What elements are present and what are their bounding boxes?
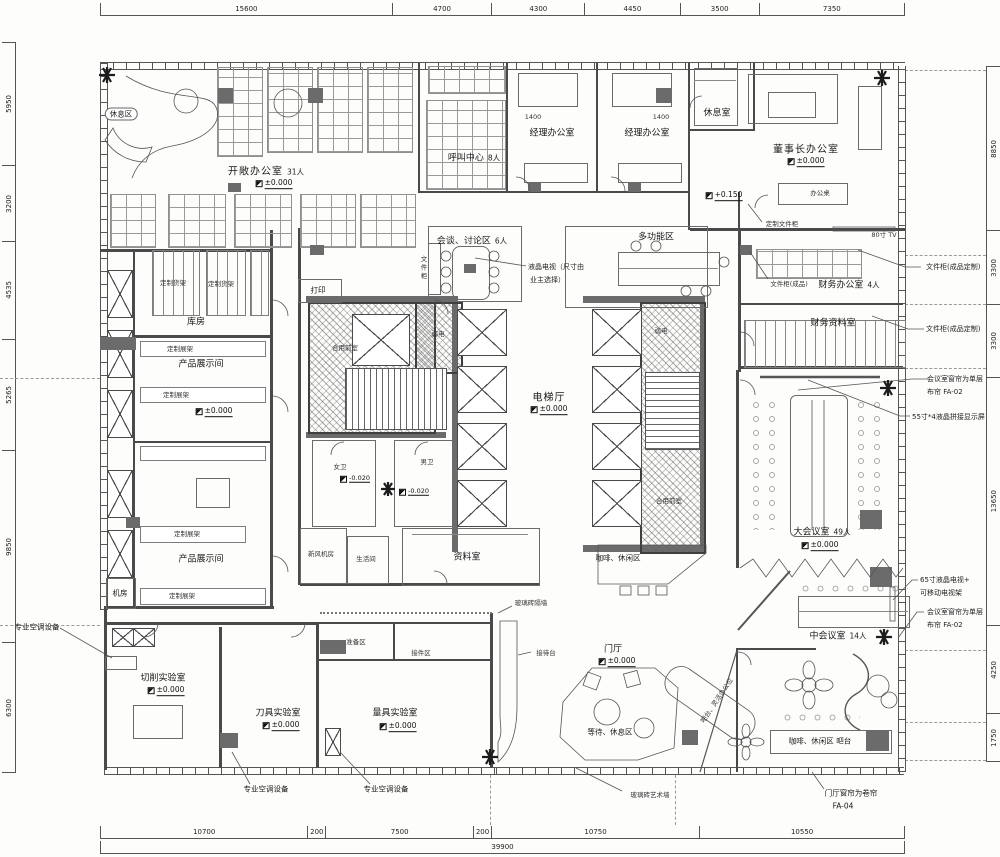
column xyxy=(126,517,140,528)
label-office-desk: 办公桌 xyxy=(810,187,830,197)
room-label-call-center: 呼叫中心8人 xyxy=(448,151,500,164)
elevator-icon xyxy=(592,366,642,413)
elevation-mark: ±0.000 xyxy=(788,157,825,167)
glass-brick-wall xyxy=(320,612,492,614)
chair-bank xyxy=(748,398,782,530)
elevator-icon xyxy=(457,480,507,527)
elevation-marker-icon xyxy=(531,407,538,414)
table-divider xyxy=(618,268,718,269)
display-rack xyxy=(140,341,266,357)
sofa xyxy=(524,163,588,183)
dim-right-4: 13650 xyxy=(990,490,998,512)
room-label-women-wc: 女卫 xyxy=(334,461,347,471)
elevation-mark: +0.150 xyxy=(706,191,743,201)
elevation-marker-icon xyxy=(196,409,203,416)
elevation-marker-icon xyxy=(399,489,406,496)
tv-icon xyxy=(464,264,476,273)
grid-line xyxy=(905,304,986,305)
label-tv-80: 80寸 TV xyxy=(871,229,896,239)
display-rack xyxy=(140,387,266,403)
room-label-finance-archive: 财务资料室 xyxy=(810,316,855,329)
dim-row-total: 39900 xyxy=(100,841,905,854)
elevator-icon xyxy=(457,366,507,413)
room-label-manager-1: 经理办公室 xyxy=(529,126,574,139)
desk-cluster xyxy=(756,249,862,279)
annotation-glass-partition: 玻璃砖隔墙 xyxy=(515,597,548,607)
label-custom-rack-1: 定制展架 xyxy=(167,343,193,353)
wall xyxy=(318,659,492,661)
dim-bottom-total: 39900 xyxy=(491,843,513,853)
elevation-mark: -0.020 xyxy=(340,475,370,483)
label-custom-shelf-2: 定制货架 xyxy=(208,278,234,288)
dim-top-2: 4700 xyxy=(433,5,451,15)
ac-unit-icon xyxy=(325,728,341,756)
dim-right-2: 3300 xyxy=(990,259,998,277)
desk-cluster xyxy=(426,100,506,190)
ac-equipment xyxy=(220,733,238,748)
elevation-marker-icon xyxy=(340,476,347,483)
dim-right-5: 4250 xyxy=(990,661,998,679)
annotation-tv-65: 可移动电视架 xyxy=(920,588,962,598)
annotation-lcd-tv: 业主选择） xyxy=(530,275,565,285)
wall xyxy=(316,622,319,768)
room-label-mid-meeting: 中会议室14人 xyxy=(809,629,866,642)
shaft-icon xyxy=(107,390,133,438)
wall xyxy=(418,191,690,193)
dim-left-2: 3200 xyxy=(5,195,13,213)
display-rack xyxy=(140,588,266,605)
desk-cluster xyxy=(428,66,506,94)
multi-function-table xyxy=(618,252,720,286)
inner-shaft-icon xyxy=(352,314,410,366)
room-label-bar-flex: 吧台、灵活办公位 xyxy=(697,676,734,725)
wall xyxy=(688,63,690,230)
room-label-lounge: 休息室 xyxy=(703,106,730,119)
annotation-hall-curtain: 门厅窗帘为卷帘 xyxy=(825,788,878,799)
sofa xyxy=(618,163,682,183)
dim-left-5: 9850 xyxy=(5,538,13,556)
dim-top-5: 3500 xyxy=(711,5,729,15)
column xyxy=(656,88,671,103)
annotation-file-cabinet-custom-1: 文件柜(成品定制) xyxy=(926,262,980,272)
wall xyxy=(318,622,493,624)
display-rack xyxy=(140,446,266,461)
label-custom-shelf-1: 定制货架 xyxy=(160,277,186,287)
stair-flight xyxy=(645,372,700,450)
elevation-marker-icon xyxy=(263,723,270,730)
wall xyxy=(133,441,271,443)
wall xyxy=(270,230,273,607)
elevation-mark: ±0.000 xyxy=(263,721,300,731)
room-label-finance-office: 财务办公室4人 xyxy=(818,278,879,291)
column xyxy=(100,337,136,350)
dim-row-top: 15600 4700 4300 4450 3500 7350 xyxy=(100,3,905,16)
elevation-mark: ±0.000 xyxy=(531,405,568,415)
room-label-print: 打印 xyxy=(311,285,326,296)
room-label-rest-area: 休息区 xyxy=(105,108,138,121)
elevator-icon xyxy=(457,309,507,356)
room-label-pantry: 生活间 xyxy=(356,553,376,563)
manager-desk xyxy=(518,73,578,107)
room-label-multi-function: 多功能区 xyxy=(638,230,674,243)
column xyxy=(218,88,233,103)
column xyxy=(228,183,241,192)
discussion-table xyxy=(452,246,490,300)
room-label-weak-electric-2: 弱电 xyxy=(655,325,668,335)
elevation-marker-icon xyxy=(380,724,387,731)
annotation-glass-art-wall: 玻璃砖艺术墙 xyxy=(631,789,670,799)
label-custom-rack-2: 定制展架 xyxy=(163,389,189,399)
elevation-mark: ±0.000 xyxy=(802,541,839,551)
elevation-mark: ±0.000 xyxy=(256,179,293,189)
room-label-weak-electric-1: 弱电 xyxy=(432,328,445,338)
desk-cluster xyxy=(110,194,156,248)
dim-bottom-6: 10550 xyxy=(791,828,813,838)
room-label-coffee-lounge-center: 咖啡、休闲区 xyxy=(596,553,641,564)
label-file-cabinet-finished: 文件柜(成品) xyxy=(770,278,808,288)
room-label-storage: 库房 xyxy=(187,315,205,328)
elevation-marker-icon xyxy=(706,193,713,200)
wall xyxy=(418,63,420,193)
grid-line xyxy=(0,378,100,379)
elevation-mark: -0.020 xyxy=(399,488,429,496)
room-label-receiving-area: 接件区 xyxy=(411,647,431,657)
elevation-marker-icon xyxy=(788,159,795,166)
annotation-ac-equipment-1: 专业空调设备 xyxy=(15,622,60,633)
exterior-window-wall xyxy=(898,66,906,772)
room-men-wc xyxy=(394,440,454,527)
dim-bottom-5: 10750 xyxy=(584,828,606,838)
dim-manager-desk-1: 1400 xyxy=(525,113,542,121)
ac-unit-icon xyxy=(112,628,134,647)
annotation-ac-equipment-2: 专业空调设备 xyxy=(244,784,289,795)
room-label-shared-front-left: 合用前室 xyxy=(332,342,358,352)
desk-cluster xyxy=(267,67,313,153)
annotation-ac-equipment-3: 专业空调设备 xyxy=(364,784,409,795)
room-label-fresh-air: 新风机房 xyxy=(308,548,334,558)
annotation-lcd-splice: 55寸*4液晶拼接显示屏 xyxy=(912,412,985,422)
dim-left-6: 6300 xyxy=(5,699,13,717)
dim-bottom-1: 10700 xyxy=(193,828,215,838)
elevation-mark: ±0.000 xyxy=(380,722,417,732)
annotation-meeting-curtain-2: 会议室窗帘为单层 xyxy=(927,607,983,617)
table-divider xyxy=(798,611,908,612)
elevation-marker-icon xyxy=(802,543,809,550)
room-label-waiting-area: 等待、休息区 xyxy=(588,727,633,738)
dim-right-3: 3300 xyxy=(990,332,998,350)
room-label-measure-lab: 量具实验室 xyxy=(372,706,417,719)
dim-bottom-4: 200 xyxy=(476,828,489,838)
wall xyxy=(736,650,738,772)
wall xyxy=(104,622,319,625)
grid-line xyxy=(905,255,986,256)
desk-cluster xyxy=(217,67,263,157)
meeting-table xyxy=(858,86,882,150)
desk-cluster xyxy=(234,194,292,248)
bar-cabinet xyxy=(866,731,889,751)
label-file-cabinet: 文件柜 xyxy=(418,255,428,281)
electrical-shaft-hatch xyxy=(415,302,463,374)
column xyxy=(870,567,892,587)
dim-left-1: 5950 xyxy=(5,95,13,113)
column xyxy=(528,183,541,192)
grid-line xyxy=(905,760,986,761)
wall xyxy=(740,303,903,305)
floor-plan-canvas: 15600 4700 4300 4450 3500 7350 10700 200… xyxy=(0,0,1000,857)
desk-cluster xyxy=(168,194,226,248)
shaft-icon xyxy=(107,470,133,518)
grid-line xyxy=(490,775,491,825)
wall xyxy=(596,63,598,193)
room-label-shared-front-right: 合用前室 xyxy=(656,495,682,505)
elevation-marker-icon xyxy=(148,688,155,695)
annotation-hall-curtain: FA-04 xyxy=(833,802,854,811)
desk-cluster xyxy=(300,194,356,248)
bed-pillow-line xyxy=(694,80,736,81)
dim-right-1: 8850 xyxy=(990,140,998,158)
room-label-chairman: 董事长办公室 xyxy=(773,141,839,156)
exterior-wall xyxy=(104,608,107,770)
dim-top-4: 4450 xyxy=(624,5,642,15)
column xyxy=(740,245,752,255)
exterior-window-wall xyxy=(104,767,496,775)
elevator-icon xyxy=(592,309,642,356)
file-cabinet xyxy=(428,243,441,295)
shaft-icon xyxy=(107,270,133,318)
shaft-icon xyxy=(107,530,133,578)
annotation-meeting-curtain-1: 布帘 FA-02 xyxy=(927,387,963,397)
room-label-tool-lab: 刀具实验室 xyxy=(255,706,300,719)
room-label-big-meeting: 大会议室49人 xyxy=(793,525,850,538)
ac-unit-icon xyxy=(133,628,155,647)
room-label-entrance-hall: 门厅 xyxy=(604,642,622,655)
annotation-file-cabinet-custom-2: 文件柜(成品定制) xyxy=(926,324,980,334)
elevator-icon xyxy=(457,423,507,470)
label-reception-desk: 接待台 xyxy=(536,647,556,657)
column xyxy=(308,88,323,103)
label-custom-rack-4: 定制展架 xyxy=(169,590,195,600)
column xyxy=(320,640,346,654)
annotation-tv-65: 65寸液晶电视+ xyxy=(920,575,970,585)
desk-cluster xyxy=(367,67,413,153)
showroom-table xyxy=(196,478,230,508)
dim-right-6: 1750 xyxy=(990,729,998,747)
dim-manager-desk-2: 1400 xyxy=(653,113,670,121)
dim-top-6: 7350 xyxy=(823,5,841,15)
annotation-meeting-curtain-2: 布帘 FA-02 xyxy=(927,620,963,630)
ac-equipment xyxy=(105,656,137,670)
conference-table xyxy=(798,596,910,628)
elevator-icon xyxy=(592,423,642,470)
column xyxy=(310,245,324,255)
elevator-icon xyxy=(592,480,642,527)
exterior-window-wall xyxy=(496,767,904,775)
elevation-mark: ±0.000 xyxy=(196,407,233,417)
wall xyxy=(506,63,508,193)
annotation-lcd-tv: 液晶电视（尺寸由 xyxy=(528,262,584,272)
desk-cluster xyxy=(360,194,416,248)
grid-line xyxy=(905,650,986,651)
room-label-open-office: 开敞办公室31人 xyxy=(228,163,304,178)
dim-left-3: 4535 xyxy=(5,281,13,299)
wall xyxy=(736,370,739,568)
desk-cluster xyxy=(317,67,363,153)
room-label-showroom-1: 产品展示间 xyxy=(178,357,223,370)
column xyxy=(628,183,641,192)
dim-col-left: 5950 3200 4535 5265 9850 6300 xyxy=(2,42,16,773)
dim-row-bottom: 10700 200 7500 200 10750 10550 xyxy=(100,826,905,839)
dim-top-3: 4300 xyxy=(529,5,547,15)
column xyxy=(682,730,698,745)
dim-col-right: 8850 3300 3300 13650 4250 1750 xyxy=(986,66,1000,762)
dim-left-4: 5265 xyxy=(5,386,13,404)
room-label-prep-area: 准备区 xyxy=(346,636,366,646)
chair-row xyxy=(780,712,860,723)
grid-line xyxy=(905,70,986,71)
archive-shelf xyxy=(412,534,528,535)
wall xyxy=(393,623,395,660)
grid-line xyxy=(905,368,986,369)
elevation-mark: ±0.000 xyxy=(599,657,636,667)
wall xyxy=(490,613,493,768)
annotation-meeting-curtain-1: 会议室窗帘为单层 xyxy=(927,374,983,384)
wall xyxy=(133,249,135,608)
label-custom-rack-3: 定制展架 xyxy=(174,528,200,538)
stair-flight xyxy=(345,368,447,430)
coffee-table xyxy=(768,92,816,118)
room-label-machine-room: 机房 xyxy=(113,588,128,599)
room-women-wc xyxy=(312,440,376,527)
wall xyxy=(690,129,755,131)
wall xyxy=(133,335,271,338)
room-label-cutting-lab: 切削实验室 xyxy=(140,671,185,684)
room-label-discussion: 会谈、讨论区6人 xyxy=(437,234,507,247)
room-label-elevator-hall: 电梯厅 xyxy=(533,389,566,404)
room-label-manager-2: 经理办公室 xyxy=(624,126,669,139)
lab-machine xyxy=(133,705,183,739)
room-label-archive: 资料室 xyxy=(453,550,480,563)
equipment-cabinet xyxy=(860,510,882,529)
elevation-marker-icon xyxy=(256,181,263,188)
dim-bottom-2: 200 xyxy=(310,828,323,838)
elevation-mark: ±0.000 xyxy=(148,686,185,696)
room-label-showroom-2: 产品展示间 xyxy=(178,552,223,565)
dim-top-1: 15600 xyxy=(235,5,257,15)
label-custom-file-cabinet: 定制文件柜 xyxy=(766,218,799,228)
conference-table xyxy=(790,395,848,537)
storage-shelf xyxy=(250,250,269,316)
dim-bottom-3: 7500 xyxy=(391,828,409,838)
grid-line xyxy=(675,775,676,825)
grid-line xyxy=(905,722,986,723)
room-label-men-wc: 男卫 xyxy=(421,456,434,466)
wall xyxy=(736,648,816,650)
room-label-coffee-bar: 咖啡、休闲区 吧台 xyxy=(789,736,851,747)
elevation-marker-icon xyxy=(599,659,606,666)
